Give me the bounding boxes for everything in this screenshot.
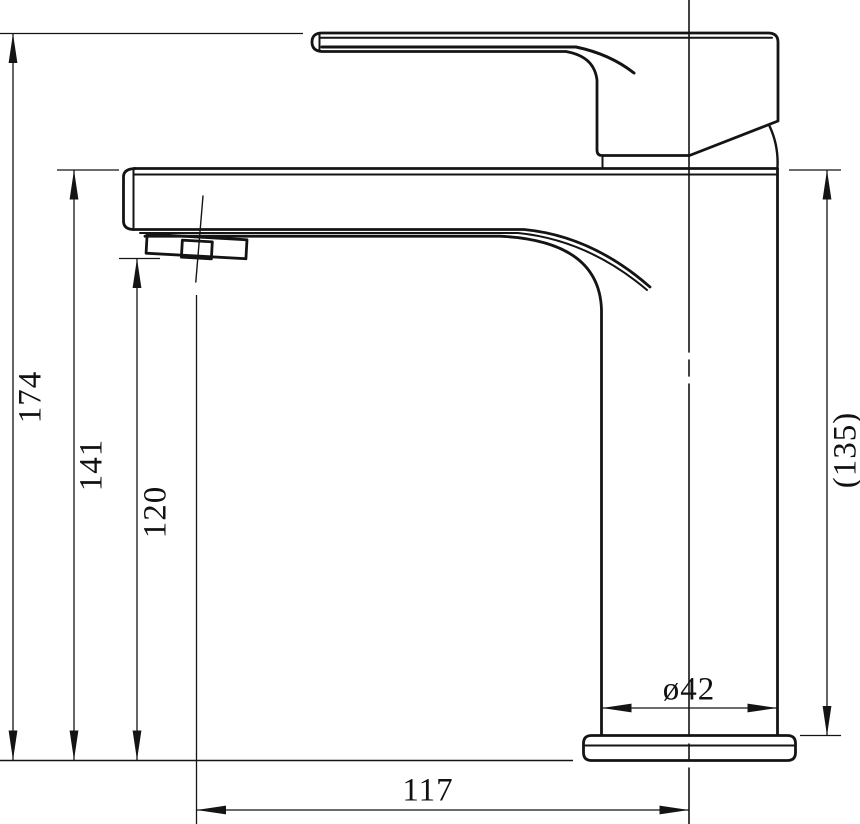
lever-handle-outline [312, 33, 778, 156]
dim-label-spout-reach: 117 [402, 775, 453, 808]
dim-label-body-height-reference: (135) [830, 412, 860, 488]
arrow-135-bottom [823, 706, 832, 736]
aerator-axis-line [196, 196, 203, 282]
aerator-group [146, 234, 247, 261]
arrow-141-top [70, 170, 79, 200]
arrow-135-top [823, 170, 832, 200]
arrow-141-bottom [70, 731, 79, 761]
faucet-drawing [0, 0, 860, 824]
arrow-120-bottom [133, 731, 142, 761]
dim-label-total-height: 174 [15, 371, 48, 424]
technical-drawing-canvas: 174 141 120 (135) ø42 117 [0, 0, 860, 824]
arrow-42-right [748, 704, 778, 713]
dim-label-base-diameter: ø42 [663, 674, 716, 707]
arrow-117-right [660, 806, 690, 815]
aerator-body [146, 234, 247, 259]
column-front-edge [145, 236, 602, 735]
arrow-42-left [602, 704, 632, 713]
spout-underside-inner [140, 233, 647, 290]
dim-label-outlet-height: 120 [140, 486, 173, 539]
arrow-117-left [197, 806, 227, 815]
body-right-arc [770, 126, 778, 167]
arrow-174-top [9, 34, 18, 64]
arrow-174-bottom [9, 731, 18, 761]
dim-label-spout-top-height: 141 [76, 439, 109, 492]
arrow-120-top [133, 259, 142, 289]
